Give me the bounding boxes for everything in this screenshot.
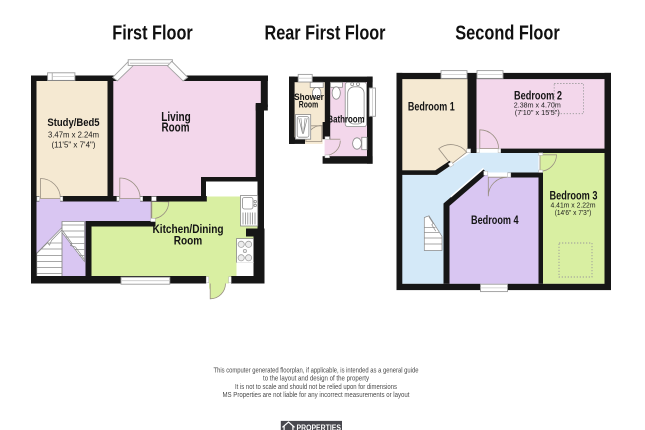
svg-text:Rear First Floor: Rear First Floor xyxy=(265,23,386,45)
svg-text:3.47m x 2.24m: 3.47m x 2.24m xyxy=(48,129,99,139)
svg-text:Room: Room xyxy=(162,120,190,134)
svg-text:(14'6" x 7'3"): (14'6" x 7'3") xyxy=(555,208,592,217)
svg-text:Kitchen/Dining: Kitchen/Dining xyxy=(153,224,224,236)
svg-text:First Floor: First Floor xyxy=(112,23,193,45)
svg-text:Room: Room xyxy=(299,99,318,110)
svg-text:to the layout and design of th: to the layout and design of the property xyxy=(263,376,369,383)
svg-text:PROPERTIES: PROPERTIES xyxy=(297,422,342,430)
svg-text:It is not to scale and should: It is not to scale and should not be rel… xyxy=(235,384,397,391)
svg-text:(11'5" x 7'4"): (11'5" x 7'4") xyxy=(52,139,96,149)
svg-text:Study/Bed5: Study/Bed5 xyxy=(47,117,99,129)
svg-text:This computer generated floorp: This computer generated floorplan, if ap… xyxy=(214,368,419,375)
svg-text:Bedroom 1: Bedroom 1 xyxy=(408,102,455,114)
svg-text:Second Floor: Second Floor xyxy=(455,23,560,45)
svg-text:Bathroom: Bathroom xyxy=(327,115,364,126)
svg-text:(7'10" x 15'5"): (7'10" x 15'5") xyxy=(515,108,560,117)
svg-text:Room: Room xyxy=(174,236,203,248)
svg-text:Bedroom 4: Bedroom 4 xyxy=(471,215,519,227)
svg-text:MS Properties are not liable f: MS Properties are not liable for any inc… xyxy=(223,392,410,399)
